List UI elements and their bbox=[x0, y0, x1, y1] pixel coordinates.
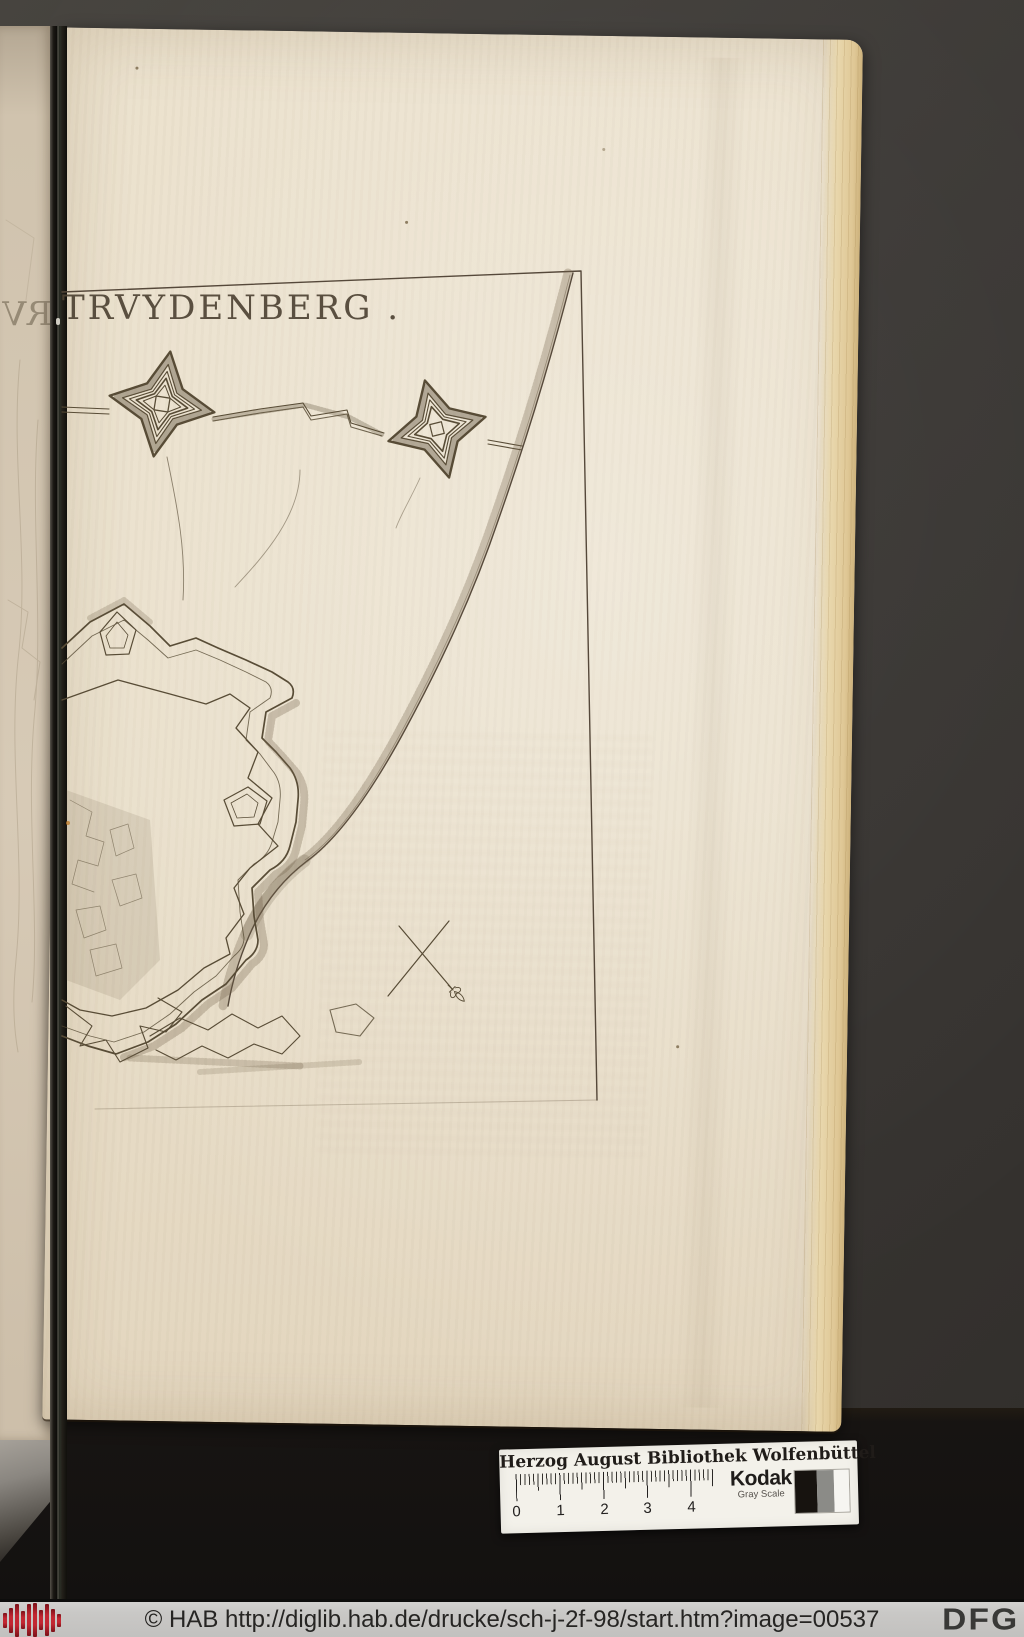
ruler-number: 2 bbox=[598, 1501, 610, 1518]
binding-rod-highlight bbox=[57, 26, 59, 1599]
foxing-speck bbox=[405, 221, 408, 224]
digitized-book-scan: RV bbox=[0, 0, 1024, 1637]
verso-show-through bbox=[316, 732, 653, 1157]
ruler-number: 1 bbox=[554, 1502, 566, 1519]
grayscale-patch-black bbox=[795, 1470, 818, 1513]
ruler-major-ticks bbox=[516, 1469, 715, 1501]
foxing-speck bbox=[676, 1045, 679, 1048]
book-page bbox=[42, 27, 863, 1431]
grayscale-patch-white bbox=[834, 1470, 850, 1512]
foxing-speck bbox=[602, 148, 605, 151]
page-fore-edge bbox=[801, 39, 863, 1431]
kodak-brand-block: Kodak Gray Scale bbox=[722, 1468, 801, 1501]
grayscale-patches bbox=[794, 1469, 851, 1514]
copyright-url: © HAB http://diglib.hab.de/drucke/sch-j-… bbox=[145, 1606, 880, 1634]
binding-rod-glint bbox=[56, 318, 60, 325]
cm-ruler: 0 1 2 3 4 bbox=[516, 1469, 719, 1520]
map-title: TRVYDENBERG . bbox=[62, 288, 401, 328]
foxing-speck bbox=[135, 67, 138, 70]
scan-footer: © HAB http://diglib.hab.de/drucke/sch-j-… bbox=[0, 1599, 1024, 1637]
grayscale-reference-card: Herzog August Bibliothek Wolfenbüttel 0 … bbox=[499, 1440, 859, 1533]
library-name: Herzog August Bibliothek Wolfenbüttel bbox=[499, 1443, 857, 1472]
paper-crease bbox=[679, 57, 746, 1408]
ruler-number: 4 bbox=[685, 1499, 697, 1516]
hab-logo-bars-icon bbox=[3, 1603, 61, 1637]
kodak-logo: Kodak bbox=[722, 1468, 800, 1490]
facing-page-sliver: RV bbox=[0, 26, 52, 1440]
binding-rod bbox=[50, 26, 67, 1599]
ruler-number: 0 bbox=[510, 1503, 522, 1520]
dfg-logo: DFG bbox=[942, 1601, 1019, 1637]
grayscale-patch-gray bbox=[817, 1470, 835, 1512]
mirrored-title-offset: RV bbox=[0, 294, 52, 333]
ruler-number: 3 bbox=[641, 1500, 653, 1517]
